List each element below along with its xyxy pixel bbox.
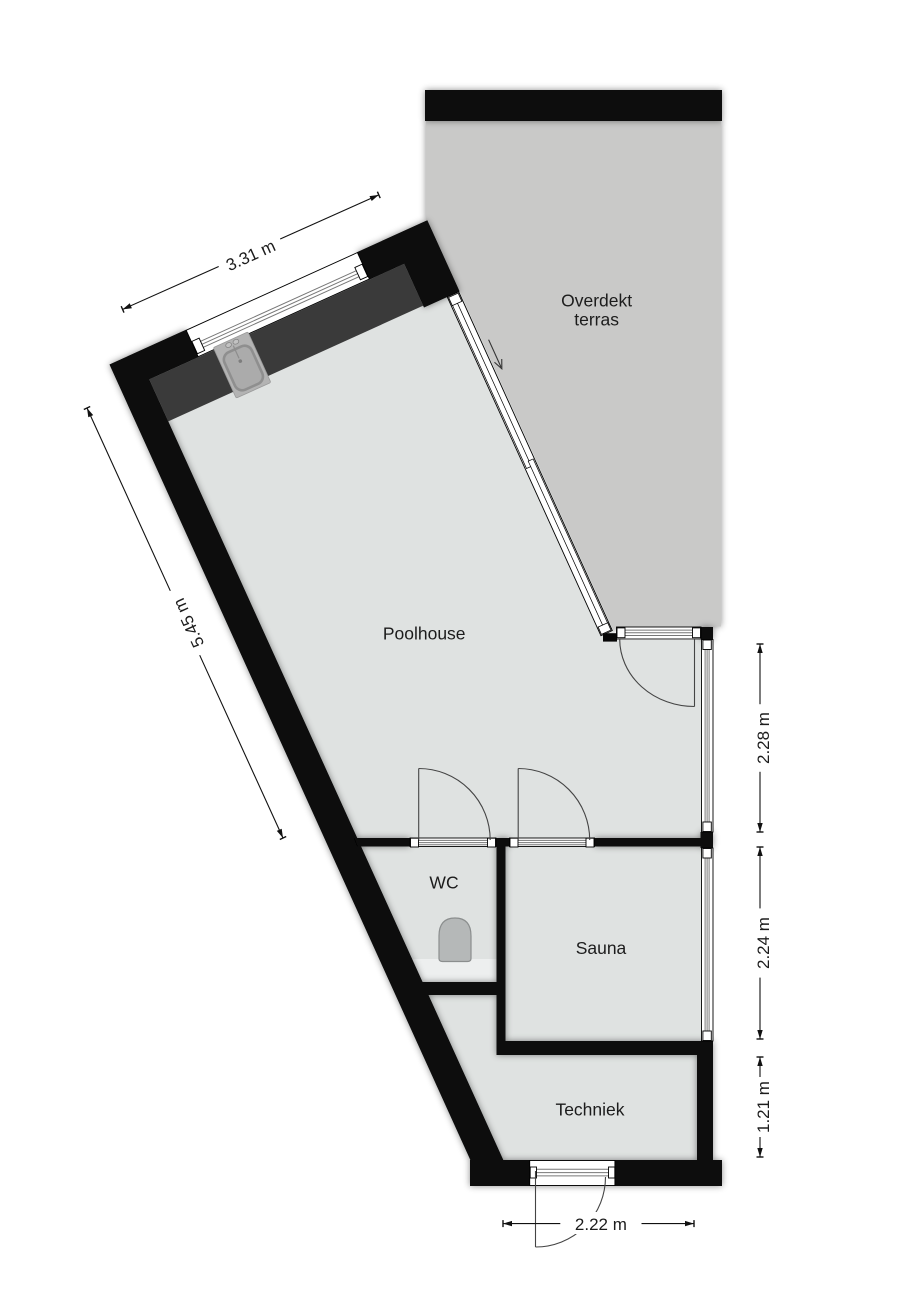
svg-text:Poolhouse: Poolhouse (383, 623, 466, 643)
svg-text:Sauna: Sauna (576, 938, 627, 958)
svg-text:terras: terras (574, 309, 619, 329)
svg-text:2.22 m: 2.22 m (575, 1215, 627, 1234)
svg-text:1.21 m: 1.21 m (754, 1081, 773, 1133)
svg-text:2.24 m: 2.24 m (754, 917, 773, 969)
svg-text:2.28 m: 2.28 m (754, 712, 773, 764)
svg-text:WC: WC (429, 873, 458, 893)
svg-text:Techniek: Techniek (555, 1100, 624, 1120)
svg-text:5.45 m: 5.45 m (169, 595, 208, 650)
svg-text:Overdekt: Overdekt (561, 290, 632, 310)
svg-text:3.31 m: 3.31 m (223, 236, 278, 275)
